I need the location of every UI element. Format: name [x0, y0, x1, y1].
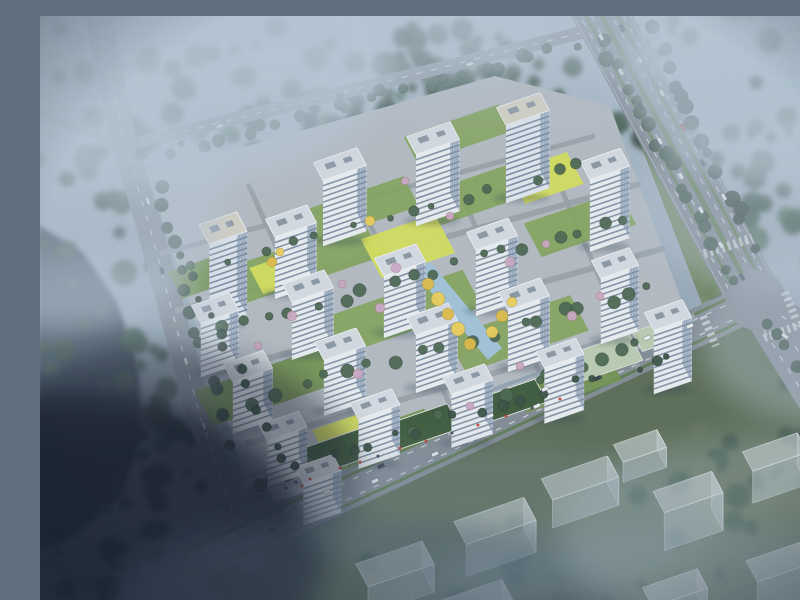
aerial-architecture-rendering — [40, 16, 800, 600]
scene-canvas — [40, 16, 800, 600]
